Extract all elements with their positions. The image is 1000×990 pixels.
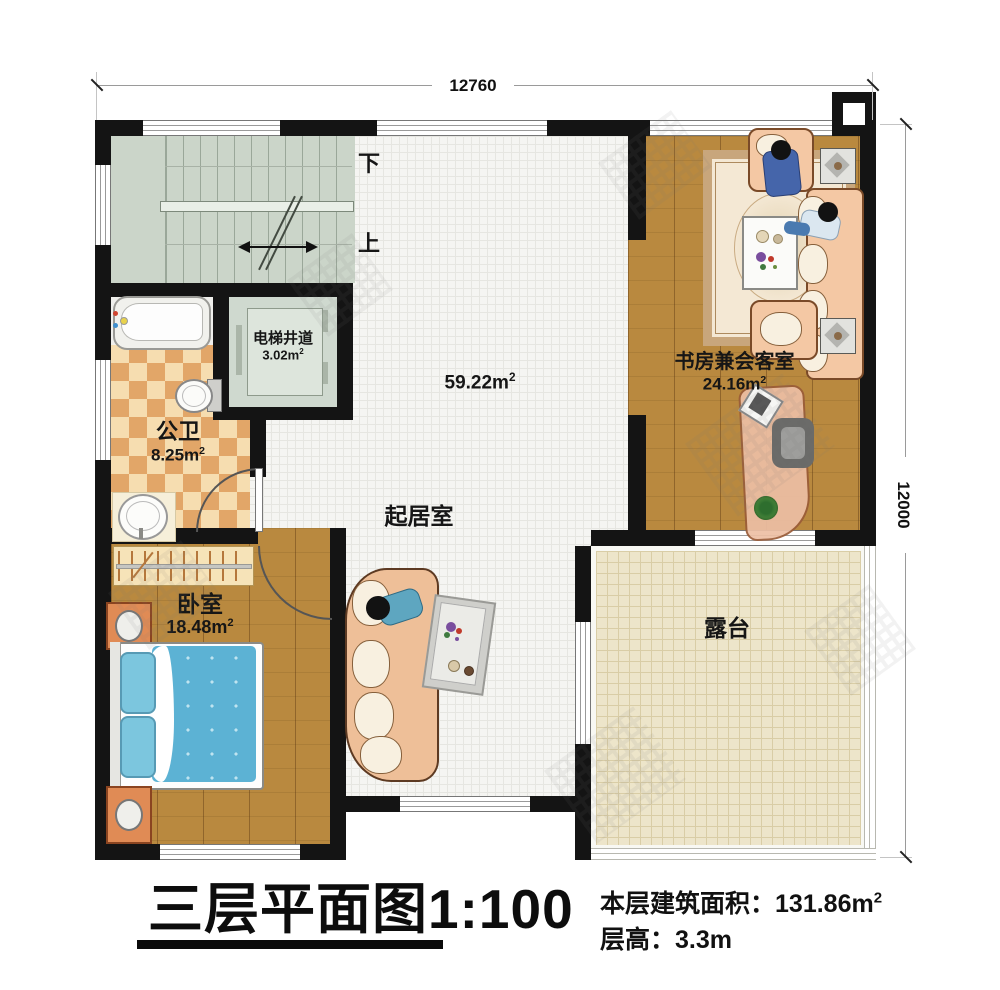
table-cup (464, 666, 474, 676)
armchair-cushion (760, 312, 802, 346)
study-table-dish (773, 234, 783, 244)
living-coffee-table-top (430, 602, 486, 686)
side-table-center (834, 332, 842, 340)
side-table-center (834, 162, 842, 170)
living-area: 59.22m2 (420, 372, 540, 393)
window-top-1 (143, 120, 280, 136)
bathtub-drain (120, 317, 128, 325)
sofa-cushion (354, 692, 394, 740)
sink-bowl-inner (126, 501, 160, 531)
living-area-sup: 2 (509, 371, 516, 384)
stairs-down-label: 下 (354, 152, 384, 175)
floor-height-text: 层高：3.3m (600, 920, 732, 956)
plan-scale: 1:100 (428, 878, 574, 940)
living-label: 起居室 (359, 504, 479, 528)
terrace-label: 露台 (667, 616, 787, 640)
bathroom-area-value: 8.25m (151, 446, 199, 465)
dim-top-value: 12760 (432, 76, 514, 96)
window-left-1 (95, 165, 111, 245)
stairs-stringer-bottom (165, 244, 352, 245)
sink-bowl (118, 494, 168, 540)
study-table-dish (756, 230, 769, 243)
wall-terrace-left-upper (575, 546, 591, 622)
study-label: 书房兼会客室 (652, 352, 817, 373)
window-living-bottom (400, 796, 530, 812)
nightstand-bottom (106, 786, 152, 844)
bathroom-area-sup: 2 (199, 445, 205, 457)
study-area-value: 24.16m (703, 375, 761, 394)
floor-area-text: 本层建筑面积：131.86m2 (600, 884, 882, 920)
floor-area-value: 131.86m (775, 890, 874, 918)
sofa-cushion (360, 736, 402, 774)
terrace-railing-bottom (591, 848, 876, 860)
lamp (115, 799, 143, 831)
elevator-label: 电梯井道 (229, 331, 337, 347)
toilet-bowl-inner (182, 385, 206, 407)
window-terrace-left (575, 622, 591, 744)
table-flowers (446, 622, 456, 632)
bathtub (113, 296, 211, 350)
elevator-area: 3.02m2 (229, 348, 337, 362)
toilet-bowl (175, 379, 213, 413)
bathtub-faucet-hot (113, 311, 118, 316)
stairs-direction-arrow (248, 246, 308, 248)
study-table-flowers (756, 252, 766, 262)
title-underline (137, 940, 443, 949)
table-cup (448, 660, 460, 672)
bathroom-door-leaf (255, 468, 263, 532)
living-person-head (366, 596, 390, 620)
bed-pillow-1 (120, 652, 156, 714)
window-top-2 (377, 120, 547, 136)
elevator-rail-right-bottom (323, 362, 328, 384)
bathroom-label: 公卫 (123, 420, 233, 443)
living-coffee-table (422, 594, 496, 696)
elevator-area-value: 3.02m (262, 347, 299, 362)
wall-elevator-bottom (213, 407, 353, 420)
study-person-1-head (771, 140, 791, 160)
window-bedroom-bottom (160, 844, 300, 860)
window-left-2 (95, 360, 111, 460)
floor-plan-page: 下 上 电梯井道 3.02m2 公卫 8.25m2 59.22m2 起居室 书房… (0, 0, 1000, 990)
sofa-cushion (352, 640, 390, 688)
floor-area-label: 本层建筑面积： (600, 890, 775, 918)
dim-right-value: 12000 (893, 457, 913, 553)
plan-title-text: 三层平面图 (148, 878, 428, 940)
wall-divider-lower (628, 415, 646, 546)
study-side-table-top (820, 148, 856, 184)
bed-pillow-2 (120, 716, 156, 778)
sink-faucet (139, 528, 143, 539)
bedroom-area-sup: 2 (227, 617, 233, 629)
bathroom-area: 8.25m2 (123, 446, 233, 465)
sofa-cushion (798, 244, 828, 284)
stairs-mid-rail (160, 201, 354, 212)
stairs-stringer-top (165, 166, 352, 167)
plan-title: 三层平面图1:100 (148, 864, 574, 944)
living-area-value: 59.22m (445, 372, 509, 393)
elevator-area-sup: 2 (299, 347, 303, 356)
study-side-table-bottom (820, 318, 856, 354)
dim-ext-top-left (96, 72, 97, 120)
bathtub-faucet-cold (113, 323, 118, 328)
dim-ext-top-right (872, 72, 873, 120)
study-person-2-head (818, 202, 838, 222)
bathtub-basin (121, 303, 203, 341)
floor-area-sup: 2 (874, 890, 882, 907)
chimney-block (832, 92, 876, 136)
stairs-arrow-right-head (306, 241, 318, 253)
stairs-arrow-left-head (238, 241, 250, 253)
